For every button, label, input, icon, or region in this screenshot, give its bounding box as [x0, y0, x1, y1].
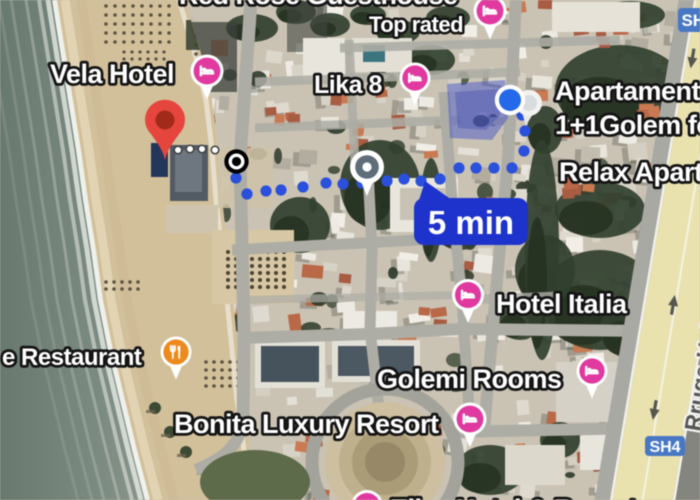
svg-text:Relax Apart: Relax Apart — [559, 157, 700, 187]
svg-text:Eliza Hotel & Resort: Eliza Hotel & Resort — [390, 494, 637, 500]
svg-text:Bonita Luxury Resort: Bonita Luxury Resort — [174, 409, 439, 439]
svg-text:e Restaurant: e Restaurant — [2, 344, 142, 371]
svg-text:Vela Hotel: Vela Hotel — [50, 59, 174, 89]
svg-text:Golemi Rooms: Golemi Rooms — [377, 364, 562, 394]
svg-text:5 min: 5 min — [428, 204, 514, 241]
svg-text:1+1Golem fo: 1+1Golem fo — [555, 110, 700, 140]
svg-text:SH4: SH4 — [649, 439, 680, 456]
svg-text:Hotel Italia: Hotel Italia — [496, 289, 628, 319]
svg-text:Top rated: Top rated — [369, 12, 463, 37]
svg-text:Red Rose Guesthouse: Red Rose Guesthouse — [179, 0, 458, 10]
svg-text:Apartament f: Apartament f — [555, 76, 700, 106]
svg-text:SH4: SH4 — [681, 11, 700, 30]
svg-text:Lika 8: Lika 8 — [314, 71, 382, 99]
